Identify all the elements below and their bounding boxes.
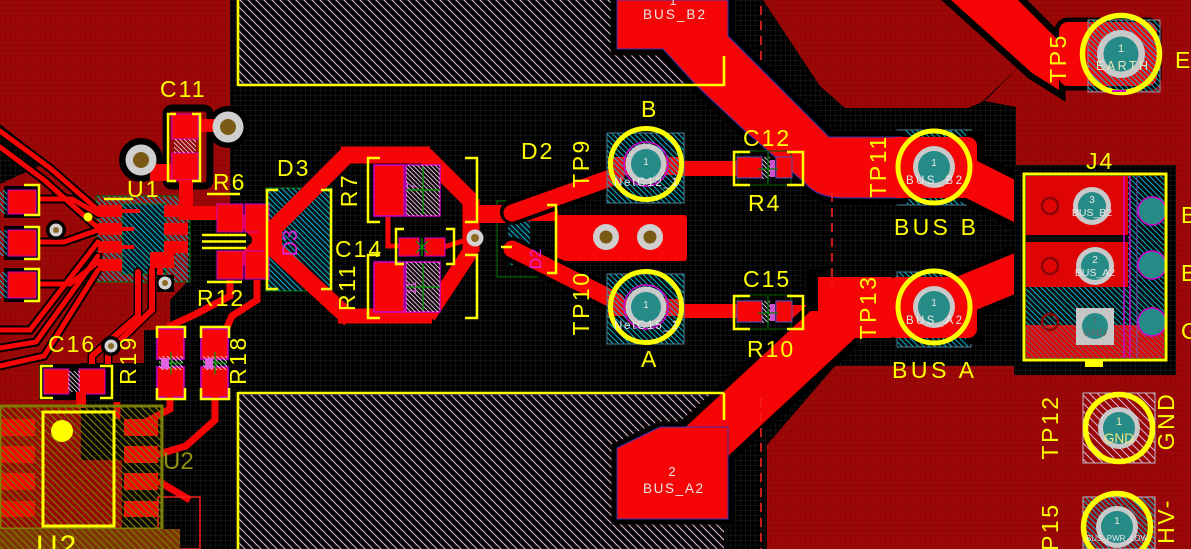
svg-text:1: 1 [1116,416,1122,428]
svg-text:R6: R6 [213,169,246,195]
svg-text:R4: R4 [748,190,781,216]
svg-text:J4: J4 [1086,148,1114,174]
svg-text:1: 1 [931,158,937,169]
svg-text:D3: D3 [279,230,302,257]
svg-text:GND: GND [1083,327,1107,339]
svg-text:BUS_B2: BUS_B2 [1072,207,1112,219]
svg-text:1: 1 [931,298,937,309]
svg-text:B: B [1181,260,1191,286]
svg-text:TP9: TP9 [568,138,594,188]
svg-text:1: 1 [643,300,649,311]
svg-text:B: B [641,96,658,122]
svg-text:TP10: TP10 [568,271,594,336]
svg-text:HV-: HV- [1153,498,1179,544]
svg-text:11: 11 [404,281,419,295]
svg-text:BUS B: BUS B [894,214,978,240]
svg-text:3: 3 [1089,195,1095,206]
svg-text:2: 2 [668,464,675,479]
svg-text:TP5: TP5 [1045,33,1071,83]
svg-text:BUS A: BUS A [892,357,976,383]
svg-text:R12: R12 [197,285,245,311]
svg-text:GND: GND [1104,431,1134,446]
svg-text:C14: C14 [335,236,383,262]
svg-text:7: 7 [404,182,419,189]
svg-text:U2: U2 [163,448,194,475]
svg-text:1: 1 [1114,516,1120,527]
svg-text:U1: U1 [127,176,160,202]
svg-text:R7: R7 [336,173,362,207]
svg-text:1: 1 [643,157,649,168]
svg-text:R19: R19 [115,335,141,385]
svg-text:C15: C15 [743,266,791,292]
svg-text:TP12: TP12 [1037,395,1063,460]
svg-text:TP15: TP15 [1037,503,1063,549]
svg-text:D2: D2 [521,138,554,164]
svg-text:BUS_A2: BUS_A2 [1075,267,1115,279]
svg-text:BUS_PWR_LOW: BUS_PWR_LOW [1086,534,1149,543]
svg-text:TP13: TP13 [855,275,881,340]
svg-text:TP11: TP11 [865,134,891,197]
svg-text:G: G [1181,318,1191,344]
svg-text:EARTH: EARTH [1096,59,1148,73]
svg-text:C11: C11 [160,76,207,102]
svg-text:1: 1 [670,0,677,8]
svg-text:E: E [1175,47,1191,73]
svg-text:1: 1 [1118,43,1124,55]
svg-text:R10: R10 [747,336,795,362]
svg-text:A: A [641,346,658,372]
svg-text:R11: R11 [334,263,360,311]
svg-text:D3: D3 [277,155,310,181]
svg-text:U2: U2 [36,530,78,549]
svg-text:D2: D2 [528,249,545,270]
svg-text:R18: R18 [225,335,251,385]
svg-text:B: B [1181,202,1191,228]
svg-text:C12: C12 [743,125,791,151]
svg-text:GND: GND [1153,392,1179,451]
svg-text:C16: C16 [48,331,96,357]
svg-text:1: 1 [1092,315,1098,326]
svg-text:2: 2 [1092,255,1098,266]
